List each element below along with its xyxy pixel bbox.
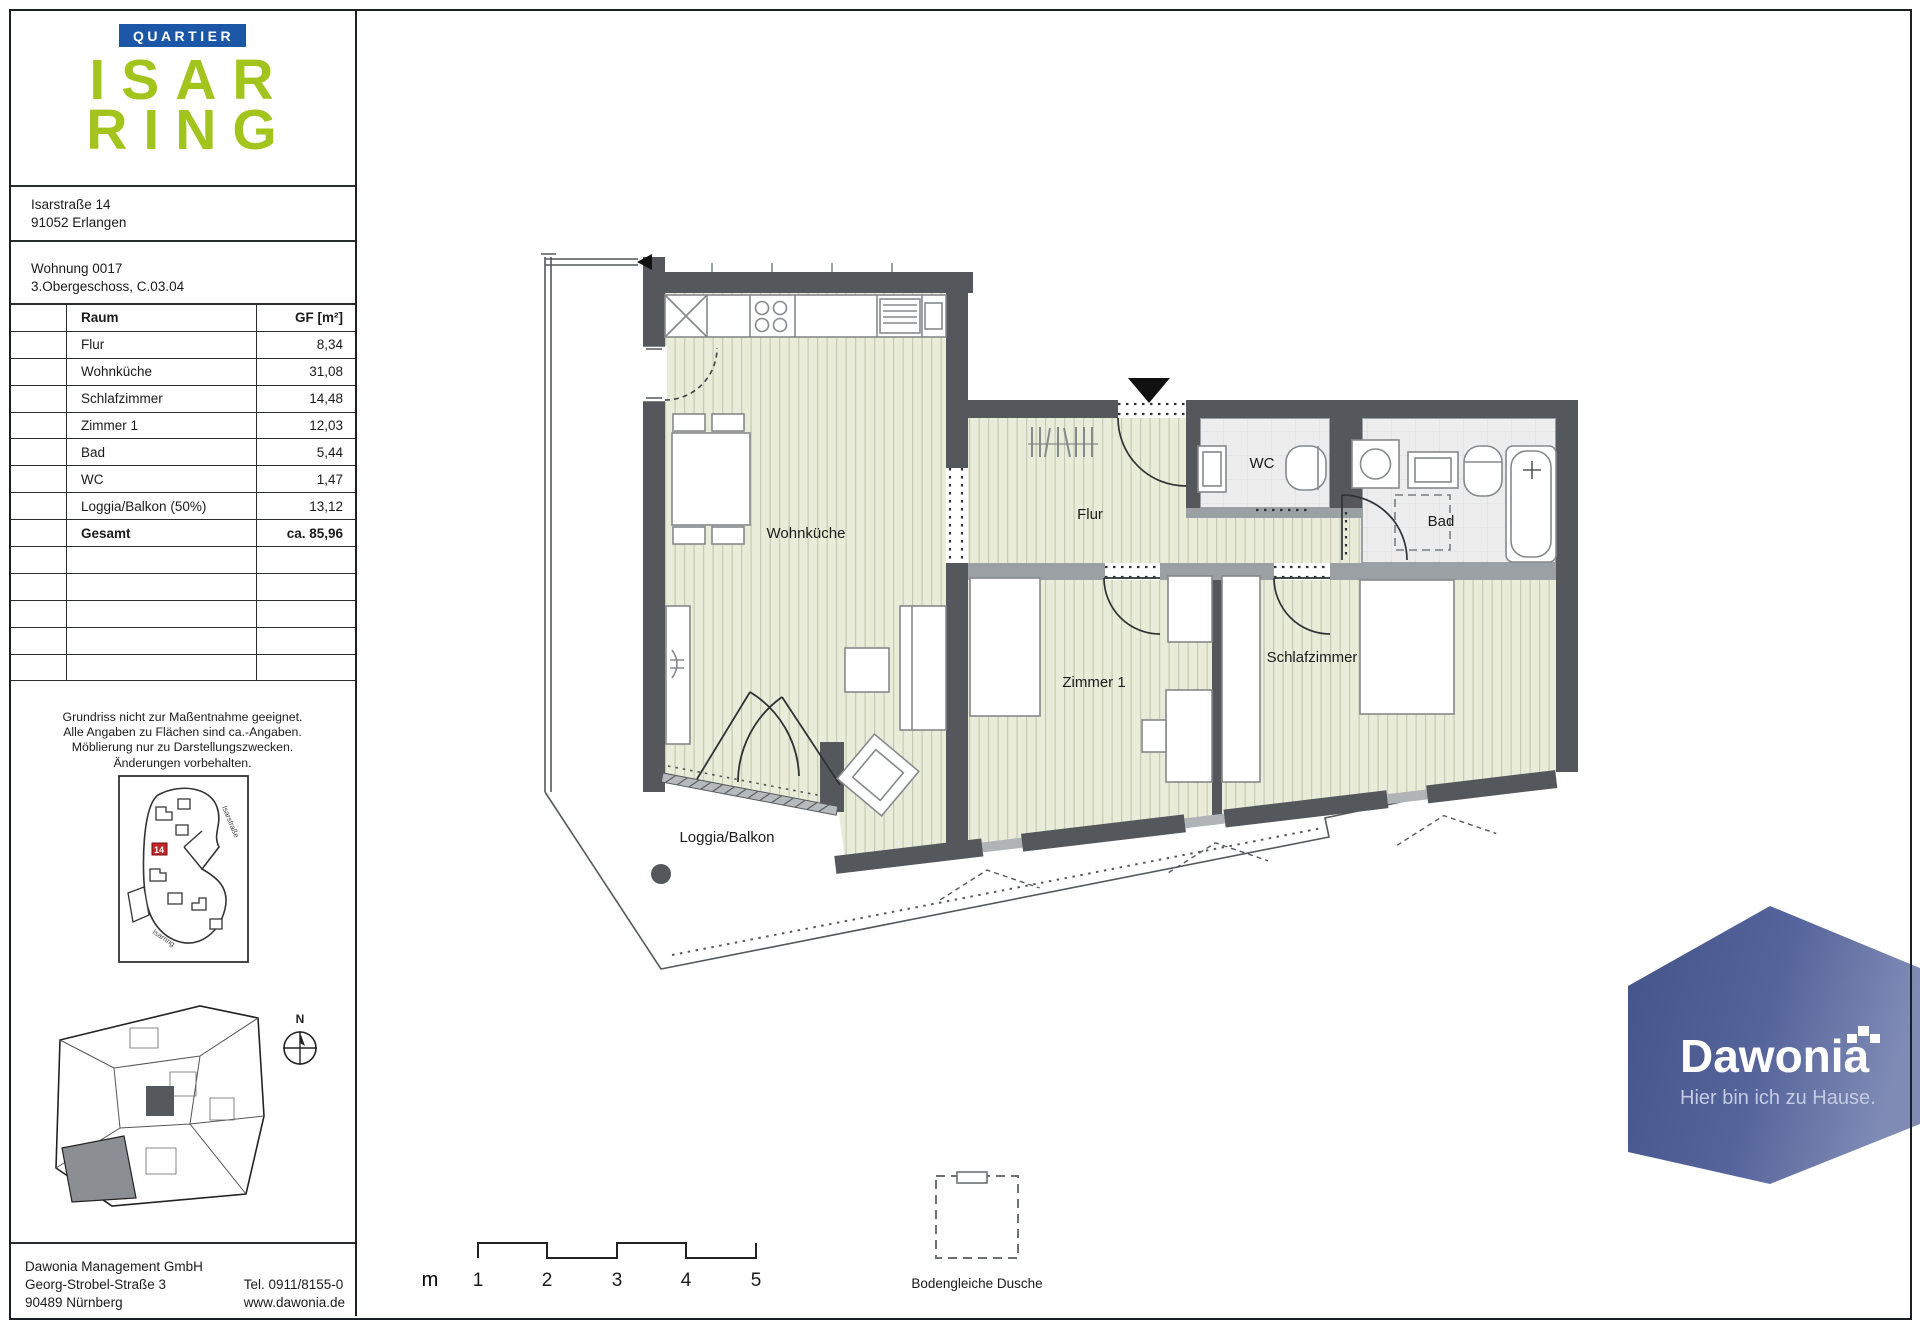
wall-wohn-zimmer1 <box>946 563 968 846</box>
label-loggia: Loggia/Balkon <box>679 829 774 846</box>
address-city: 91052 Erlangen <box>31 214 126 232</box>
room-name: Wohnküche <box>67 359 257 385</box>
room-name: Bad <box>67 439 257 465</box>
dawonia-tagline: Hier bin ich zu Hause. <box>1680 1087 1876 1109</box>
table-row: Wohnküche31,08 <box>10 359 355 386</box>
compass-needle <box>300 1032 305 1046</box>
shower-legend-label: Bodengleiche Dusche <box>911 1276 1042 1291</box>
bad-toilet <box>1464 446 1502 496</box>
chair <box>673 414 705 431</box>
company-block: Dawonia Management GmbH Georg-Strobel-St… <box>10 1242 355 1318</box>
apartment-number: Wohnung 0017 <box>31 260 184 278</box>
label-bad: Bad <box>1428 513 1455 530</box>
scale-tick: 3 <box>612 1270 623 1291</box>
room-area: 14,48 <box>257 386 355 412</box>
disclaimer-line: Möblierung nur zu Darstellungszwecken. <box>10 740 355 755</box>
wall-west <box>643 257 665 792</box>
highlighted-apartment <box>62 1136 136 1202</box>
table-row: WC1,47 <box>10 466 355 493</box>
label-flur: Flur <box>1077 506 1103 523</box>
room-name: WC <box>67 466 257 492</box>
building-floor-plan-map <box>50 998 275 1218</box>
wall-zimmer-schlaf <box>1212 580 1222 817</box>
table-row: Flur8,34 <box>10 332 355 359</box>
room-name: Schlafzimmer <box>67 386 257 412</box>
table-empty-row <box>10 628 355 655</box>
table-empty-row <box>10 547 355 574</box>
divider <box>10 240 355 242</box>
room-area: 5,44 <box>257 439 355 465</box>
highlighted-building-number: 14 <box>154 845 164 855</box>
chair <box>712 414 744 431</box>
room-area: 1,47 <box>257 466 355 492</box>
address-street: Isarstraße 14 <box>31 196 126 214</box>
scale-tick: 4 <box>681 1270 692 1291</box>
column <box>651 864 671 884</box>
wall-north <box>643 272 973 293</box>
scale-tick: 5 <box>751 1270 762 1291</box>
disclaimer-line: Grundriss nicht zur Maßentnahme geeignet… <box>10 710 355 725</box>
apartment-floor: 3.Obergeschoss, C.03.04 <box>31 278 184 296</box>
wc-toilet <box>1286 446 1326 490</box>
room-area: 12,03 <box>257 413 355 439</box>
shower-legend: Bodengleiche Dusche <box>911 1172 1042 1291</box>
bed-zimmer1 <box>970 578 1040 716</box>
label-wc: WC <box>1250 455 1275 472</box>
wardrobe-schlafzimmer <box>1222 576 1260 782</box>
table-empty-row <box>10 601 355 628</box>
quartier-badge: QUARTIER <box>119 24 246 47</box>
room-name: Zimmer 1 <box>67 413 257 439</box>
oven-icon <box>880 299 920 333</box>
sofa <box>900 606 946 730</box>
table-row: Loggia/Balkon (50%)13,12 <box>10 493 355 520</box>
building-core <box>146 1086 174 1116</box>
company-street: Georg-Strobel-Straße 3 <box>25 1276 203 1294</box>
total-value: ca. 85,96 <box>257 520 355 546</box>
divider <box>10 185 355 187</box>
label-wohnkueche: Wohnküche <box>767 525 846 542</box>
bed-schlafzimmer <box>1360 580 1454 714</box>
wall-wohn-flur <box>946 293 968 468</box>
wall-flur-north <box>968 400 1118 418</box>
compass-n-label: N <box>296 1012 305 1026</box>
shower-legend-square <box>936 1176 1018 1258</box>
shower-drain-icon <box>957 1172 987 1183</box>
room-area: 13,12 <box>257 493 355 519</box>
scale-unit: m <box>422 1269 439 1291</box>
chair <box>712 527 744 544</box>
scale-bar: m 1 2 3 4 5 <box>422 1243 762 1291</box>
desk-chair <box>1142 720 1166 752</box>
company-name: Dawonia Management GmbH <box>25 1258 203 1276</box>
kitchen-counter <box>665 295 946 337</box>
disclaimer: Grundriss nicht zur Maßentnahme geeignet… <box>10 710 355 771</box>
wall-ticks <box>712 263 892 272</box>
company-web: www.dawonia.de <box>244 1294 345 1312</box>
table-row: Schlafzimmer14,48 <box>10 386 355 413</box>
room-area: 31,08 <box>257 359 355 385</box>
label-schlafzimmer: Schlafzimmer <box>1267 649 1358 666</box>
scale-bar-line <box>478 1243 756 1258</box>
scale-tick: 1 <box>473 1270 484 1291</box>
wall-bad-north <box>1186 400 1578 418</box>
desk <box>1166 690 1212 782</box>
room-area: 8,34 <box>257 332 355 358</box>
info-panel: QUARTIER ISAR RING Isarstraße 14 91052 E… <box>10 10 357 1316</box>
company-phone: Tel. 0911/8155-0 <box>244 1276 345 1294</box>
project-address: Isarstraße 14 91052 Erlangen <box>31 196 126 232</box>
total-label: Gesamt <box>67 520 257 546</box>
dawonia-wordmark: Dawonia <box>1680 1030 1870 1082</box>
disclaimer-line: Änderungen vorbehalten. <box>10 756 355 771</box>
room-name: Loggia/Balkon (50%) <box>67 493 257 519</box>
table-row: Bad5,44 <box>10 439 355 466</box>
scale-tick: 2 <box>542 1270 553 1291</box>
dawonia-logo: Dawonia Hier bin ich zu Hause. <box>1628 906 1920 1184</box>
project-logo: QUARTIER ISAR RING <box>10 10 355 185</box>
apartment-info: Wohnung 0017 3.Obergeschoss, C.03.04 <box>31 260 184 296</box>
table-row: Zimmer 112,03 <box>10 413 355 440</box>
entrance-arrow-icon <box>1128 378 1170 403</box>
sideboard <box>666 606 690 744</box>
floor-plan-sheet: Wohnküche Flur WC Bad Zimmer 1 Schlafzim… <box>0 0 1920 1327</box>
chair <box>673 527 705 544</box>
coffee-table <box>845 648 889 692</box>
header-raum: Raum <box>67 305 257 331</box>
company-city: 90489 Nürnberg <box>25 1294 203 1312</box>
north-compass: N <box>278 1010 322 1074</box>
logo-line-ring: RING <box>24 105 355 155</box>
area-table: Raum GF [m²] Flur8,34 Wohnküche31,08 Sch… <box>10 303 355 681</box>
table-empty-row <box>10 574 355 601</box>
table-total-row: Gesamtca. 85,96 <box>10 520 355 547</box>
header-gf: GF [m²] <box>257 305 355 331</box>
room-name: Flur <box>67 332 257 358</box>
site-plan-map: 14 Isarstraße Isarring <box>118 775 249 963</box>
sink-icon <box>925 303 942 329</box>
label-zimmer1: Zimmer 1 <box>1062 674 1125 691</box>
table-empty-row <box>10 655 355 682</box>
wardrobe-zimmer1 <box>1168 576 1212 642</box>
wall-east <box>1556 400 1578 772</box>
table-header-row: Raum GF [m²] <box>10 305 355 332</box>
disclaimer-line: Alle Angaben zu Flächen sind ca.-Angaben… <box>10 725 355 740</box>
dining-table <box>672 433 750 525</box>
